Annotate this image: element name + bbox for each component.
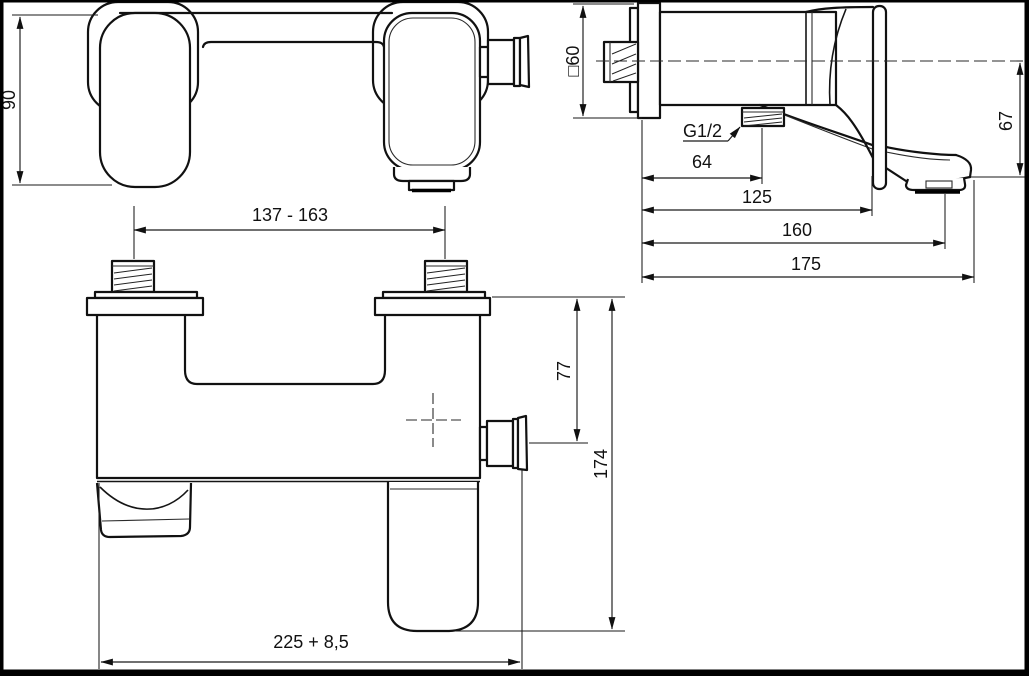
dimension-125: 125 — [642, 176, 872, 216]
front-view: 77 174 225 + 8,5 — [87, 261, 625, 669]
spout-housing-front — [384, 13, 480, 170]
dimension-160: 160 — [642, 194, 945, 249]
thread-callout: G1/2 — [683, 121, 740, 141]
spout-outlet-top — [409, 181, 454, 190]
dim-77-label: 77 — [554, 361, 574, 381]
lever-blade — [873, 6, 886, 189]
dim-sq60-label: □60 — [563, 46, 583, 77]
dim-125-label: 125 — [742, 187, 772, 207]
mixer-body-front — [97, 314, 480, 478]
dimension-137-163: 137 - 163 — [134, 205, 445, 259]
side-view: □60 G1/2 64 125 160 175 — [563, 3, 1029, 283]
dim-175-label: 175 — [791, 254, 821, 274]
left-inlet-thread — [112, 261, 154, 292]
spout-front — [97, 483, 191, 537]
dim-174-label: 174 — [591, 449, 611, 479]
dim-160-label: 160 — [782, 220, 812, 240]
thread-size-label: G1/2 — [683, 121, 722, 141]
lever-handle-front — [388, 482, 478, 631]
left-union-flange — [87, 298, 203, 315]
handshower-outlet-thread — [742, 108, 784, 126]
dim-64-label: 64 — [692, 152, 712, 172]
technical-drawing: 90 137 - 163 — [0, 0, 1029, 676]
spout-collar — [394, 167, 470, 181]
drawing-canvas: 90 137 - 163 — [0, 0, 1029, 676]
diverter-knob-top — [480, 36, 529, 87]
inlet-thread-side — [604, 42, 638, 82]
mixer-body-side — [660, 12, 836, 105]
dim-225-label: 225 + 8,5 — [273, 632, 349, 652]
right-inlet-thread — [425, 261, 467, 292]
lever-handle-top — [100, 13, 190, 187]
top-view: 90 137 - 163 — [0, 2, 529, 259]
dim-67-label: 67 — [996, 111, 1016, 131]
diverter-knob-front — [480, 416, 527, 470]
body-bar-bottom-edge — [203, 42, 384, 47]
dimension-67: 67 — [971, 63, 1029, 177]
dimension-174: 174 — [456, 299, 625, 631]
spout-top-inner-left — [772, 110, 875, 150]
dim-137-163-label: 137 - 163 — [252, 205, 328, 225]
right-union-flange — [375, 298, 490, 315]
spout-tip — [956, 155, 971, 177]
